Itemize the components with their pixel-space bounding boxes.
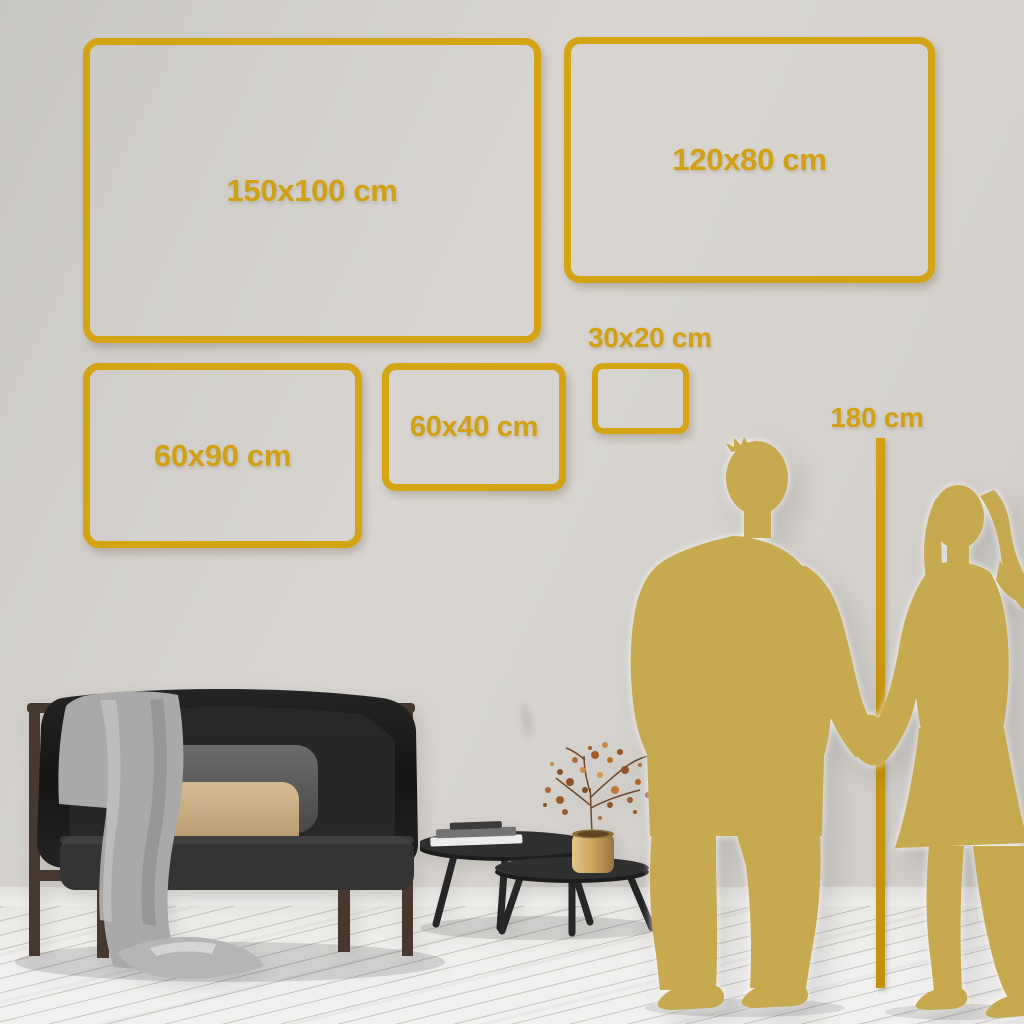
size-frame-60x40: 60x40 cm [382, 363, 566, 491]
book-stack [430, 820, 523, 846]
size-label-60x40: 60x40 cm [410, 411, 538, 444]
size-label-30x20: 30x20 cm [588, 322, 712, 354]
couple-silhouette [600, 430, 1024, 1024]
size-label-120x80: 120x80 cm [672, 142, 826, 178]
size-frame-30x20 [592, 363, 689, 434]
size-label-150x100: 150x100 cm [226, 173, 397, 209]
size-frame-120x80: 120x80 cm [564, 37, 935, 283]
man-silhouette [631, 437, 898, 1010]
size-guide-scene: 150x100 cm 120x80 cm 60x90 cm 60x40 cm 3… [0, 0, 1024, 1024]
size-label-60x90: 60x90 cm [154, 438, 291, 474]
woman-silhouette [867, 485, 1024, 1018]
size-frame-60x90: 60x90 cm [83, 363, 362, 548]
sofa [0, 680, 470, 1024]
size-frame-150x100: 150x100 cm [83, 38, 541, 343]
